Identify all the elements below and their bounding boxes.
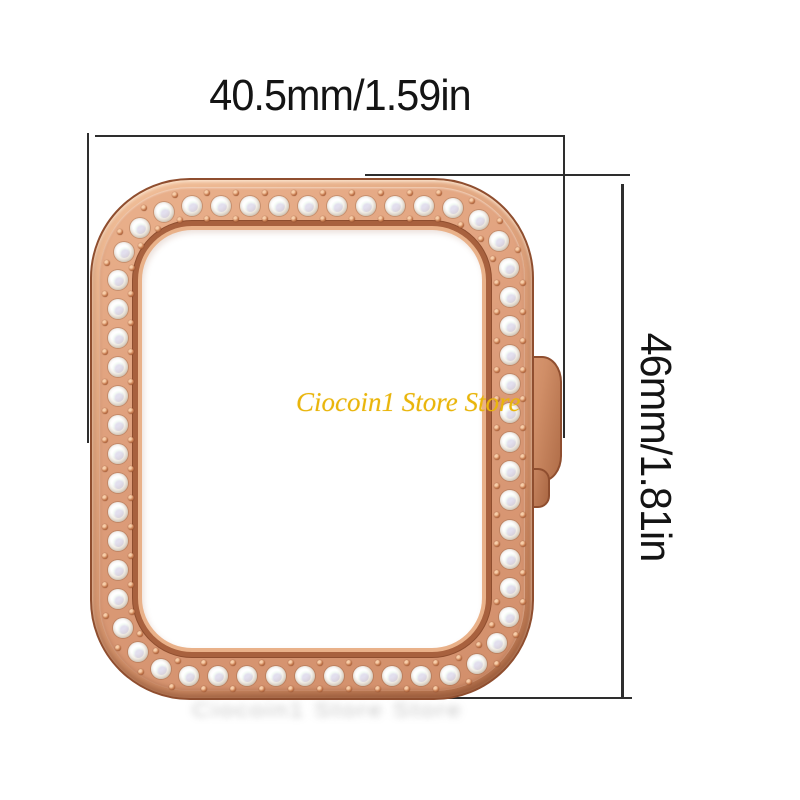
bead-dot [469, 198, 475, 204]
rhinestone [108, 270, 128, 290]
bead-dot [128, 582, 134, 588]
rhinestone [467, 654, 487, 674]
rhinestone [108, 473, 128, 493]
bead-dot [520, 483, 526, 489]
bead-dot [115, 645, 121, 651]
rhinestone [108, 531, 128, 551]
rhinestone [500, 520, 520, 540]
bead-dot [102, 466, 108, 472]
rhinestone [108, 328, 128, 348]
bead-dot [102, 495, 108, 501]
rhinestone [108, 415, 128, 435]
bead-dot [375, 660, 381, 666]
width-dimension-tick-right [563, 135, 565, 438]
bead-dot [494, 599, 500, 605]
bead-dot [346, 686, 352, 692]
bead-dot [317, 660, 323, 666]
bead-dot [288, 660, 294, 666]
rhinestone [114, 242, 134, 262]
bead-dot [520, 338, 526, 344]
bead-dot [494, 541, 500, 547]
bead-dot [104, 260, 110, 266]
bead-dot [520, 599, 526, 605]
bead-dot [102, 291, 108, 297]
bead-dot [128, 553, 134, 559]
bead-dot [128, 495, 134, 501]
rhinestone [266, 666, 286, 686]
blurred-watermark-text: Ciocoin1 Store Store [192, 698, 463, 723]
bead-dot [230, 686, 236, 692]
bead-dot [201, 686, 207, 692]
rhinestone [208, 666, 228, 686]
bead-dot [520, 512, 526, 518]
bead-dot [102, 320, 108, 326]
bead-dot [317, 686, 323, 692]
bead-dot [435, 216, 441, 222]
rhinestone [500, 549, 520, 569]
rhinestone [440, 665, 460, 685]
rhinestone [500, 461, 520, 481]
bead-dot [520, 309, 526, 315]
bead-dot [291, 190, 297, 196]
bead-dot [404, 686, 410, 692]
bead-dot [349, 216, 355, 222]
rhinestones-layer [92, 180, 532, 698]
bead-dot [138, 669, 144, 675]
bead-dot [407, 190, 413, 196]
rhinestone [108, 502, 128, 522]
bead-dot [262, 216, 268, 222]
bead-dot [233, 190, 239, 196]
rhinestone [382, 666, 402, 686]
bead-dot [466, 679, 472, 685]
rhinestone [385, 196, 405, 216]
bead-dot [102, 553, 108, 559]
bead-dot [230, 660, 236, 666]
bead-dot [138, 243, 144, 249]
rhinestone [411, 666, 431, 686]
bead-dot [177, 217, 183, 223]
bead-dot [520, 454, 526, 460]
bead-dot [375, 686, 381, 692]
rhinestone [113, 618, 133, 638]
bead-dot [404, 660, 410, 666]
bead-dot [513, 632, 519, 638]
bead-dot [520, 541, 526, 547]
rhinestone [237, 666, 257, 686]
bead-dot [520, 367, 526, 373]
bead-dot [128, 349, 134, 355]
bead-dot [494, 512, 500, 518]
rhinestone [353, 666, 373, 686]
rhinestone [182, 196, 202, 216]
rhinestone [269, 196, 289, 216]
rhinestone [499, 258, 519, 278]
rhinestone [500, 287, 520, 307]
bead-dot [128, 408, 134, 414]
bead-dot [478, 236, 484, 242]
height-dimension-line [621, 184, 624, 697]
bead-dot [378, 216, 384, 222]
width-dimension-tick-left [87, 133, 89, 443]
rhinestone [487, 633, 507, 653]
bead-dot [262, 190, 268, 196]
width-dimension-line [95, 135, 563, 137]
bead-dot [117, 229, 123, 235]
bead-dot [129, 609, 135, 615]
bead-dot [128, 379, 134, 385]
bead-dot [129, 265, 135, 271]
bead-dot [141, 205, 147, 211]
bead-dot [204, 190, 210, 196]
height-dimension-tick-top [365, 174, 630, 176]
bead-dot [259, 686, 265, 692]
rhinestone [108, 444, 128, 464]
bead-dot [436, 190, 442, 196]
rhinestone [295, 666, 315, 686]
rhinestone [500, 345, 520, 365]
rhinestone [469, 210, 489, 230]
bead-dot [169, 684, 175, 690]
rhinestone [500, 316, 520, 336]
bead-dot [102, 582, 108, 588]
bead-dot [128, 437, 134, 443]
bead-dot [494, 309, 500, 315]
watch-case-bumper [90, 178, 534, 700]
bead-dot [489, 622, 495, 628]
bead-dot [175, 658, 181, 664]
rhinestone [154, 202, 174, 222]
rhinestone [489, 231, 509, 251]
bead-dot [320, 216, 326, 222]
bead-dot [204, 216, 210, 222]
bead-dot [291, 216, 297, 222]
rhinestone [500, 578, 520, 598]
bead-dot [233, 216, 239, 222]
bead-dot [103, 613, 109, 619]
rhinestone [324, 666, 344, 686]
rhinestone [211, 196, 231, 216]
bead-dot [433, 686, 439, 692]
bead-dot [346, 660, 352, 666]
rhinestone [500, 490, 520, 510]
rhinestone [108, 560, 128, 580]
bead-dot [476, 642, 482, 648]
rhinestone [443, 198, 463, 218]
bead-dot [102, 349, 108, 355]
bead-dot [128, 291, 134, 297]
bead-dot [497, 218, 503, 224]
bead-dot [515, 247, 521, 253]
bead-dot [494, 280, 500, 286]
bead-dot [102, 524, 108, 530]
width-dimension-label: 40.5mm/1.59in [20, 71, 659, 121]
rhinestone [298, 196, 318, 216]
rhinestone [500, 432, 520, 452]
bead-dot [458, 222, 464, 228]
rhinestone [179, 666, 199, 686]
bead-dot [128, 524, 134, 530]
rhinestone [240, 196, 260, 216]
bead-dot [407, 216, 413, 222]
bead-dot [520, 425, 526, 431]
bead-dot [494, 570, 500, 576]
bead-dot [494, 483, 500, 489]
bead-dot [128, 320, 134, 326]
bead-dot [102, 437, 108, 443]
bead-dot [490, 256, 496, 262]
bead-dot [102, 408, 108, 414]
bead-dot [349, 190, 355, 196]
bead-dot [102, 379, 108, 385]
rhinestone [327, 196, 347, 216]
rhinestone [108, 299, 128, 319]
bead-dot [155, 226, 161, 232]
rhinestone [108, 357, 128, 377]
product-dimension-image: 40.5mm/1.59in 46mm/1.81in Ciocoin1 Store… [0, 0, 800, 800]
rhinestone [128, 642, 148, 662]
bead-dot [137, 631, 143, 637]
bead-dot [494, 661, 500, 667]
bead-dot [520, 280, 526, 286]
rhinestone [499, 607, 519, 627]
bead-dot [433, 660, 439, 666]
rhinestone [130, 218, 150, 238]
bead-dot [259, 660, 265, 666]
height-dimension-label: 46mm/1.81in [630, 333, 680, 562]
bead-dot [520, 396, 526, 402]
bead-dot [456, 655, 462, 661]
bead-dot [201, 660, 207, 666]
rhinestone [414, 196, 434, 216]
bead-dot [494, 367, 500, 373]
bead-dot [494, 425, 500, 431]
bead-dot [378, 190, 384, 196]
rhinestone [356, 196, 376, 216]
bead-dot [320, 190, 326, 196]
bead-dot [494, 454, 500, 460]
rhinestone [151, 659, 171, 679]
bead-dot [288, 686, 294, 692]
bead-dot [153, 648, 159, 654]
store-watermark-text: Ciocoin1 Store Store [296, 387, 520, 418]
bead-dot [172, 192, 178, 198]
bead-dot [494, 338, 500, 344]
bead-dot [128, 466, 134, 472]
rhinestone [108, 386, 128, 406]
rhinestone [108, 589, 128, 609]
bead-dot [520, 570, 526, 576]
